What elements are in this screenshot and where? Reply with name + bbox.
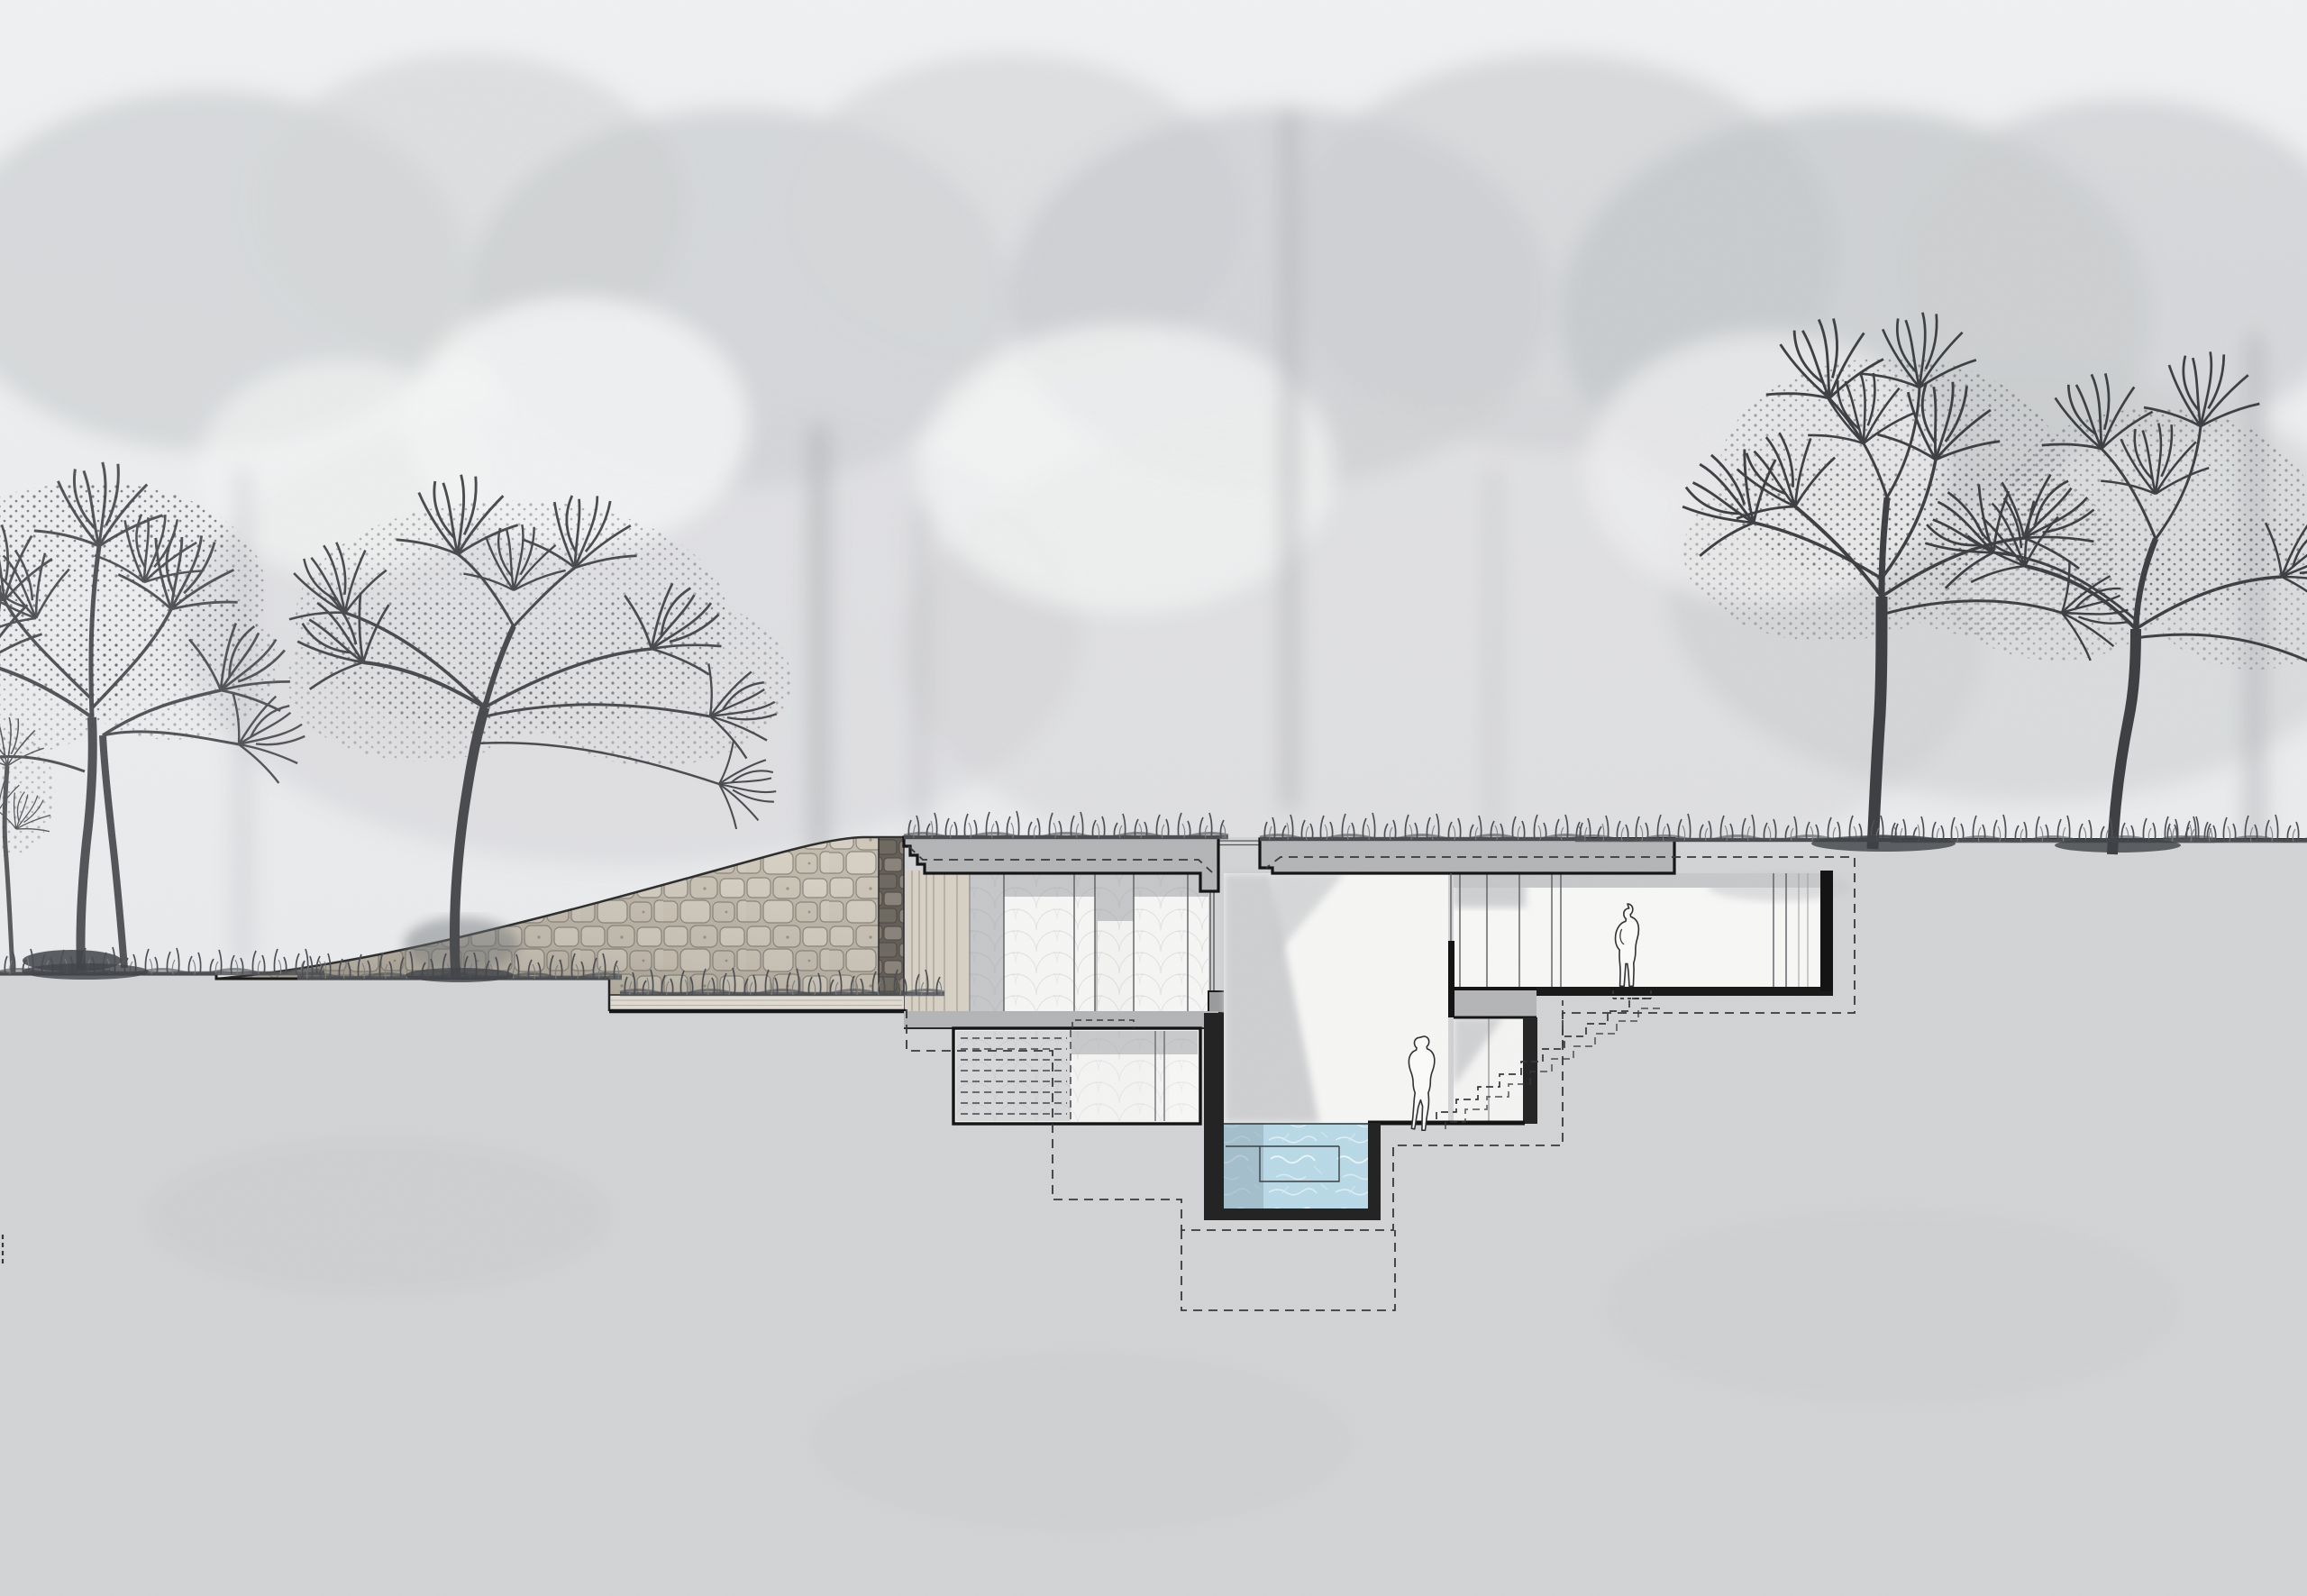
section-drawing-canvas — [0, 0, 2307, 1596]
paper-grain — [0, 0, 2307, 1596]
drawing-svg — [0, 0, 2307, 1596]
